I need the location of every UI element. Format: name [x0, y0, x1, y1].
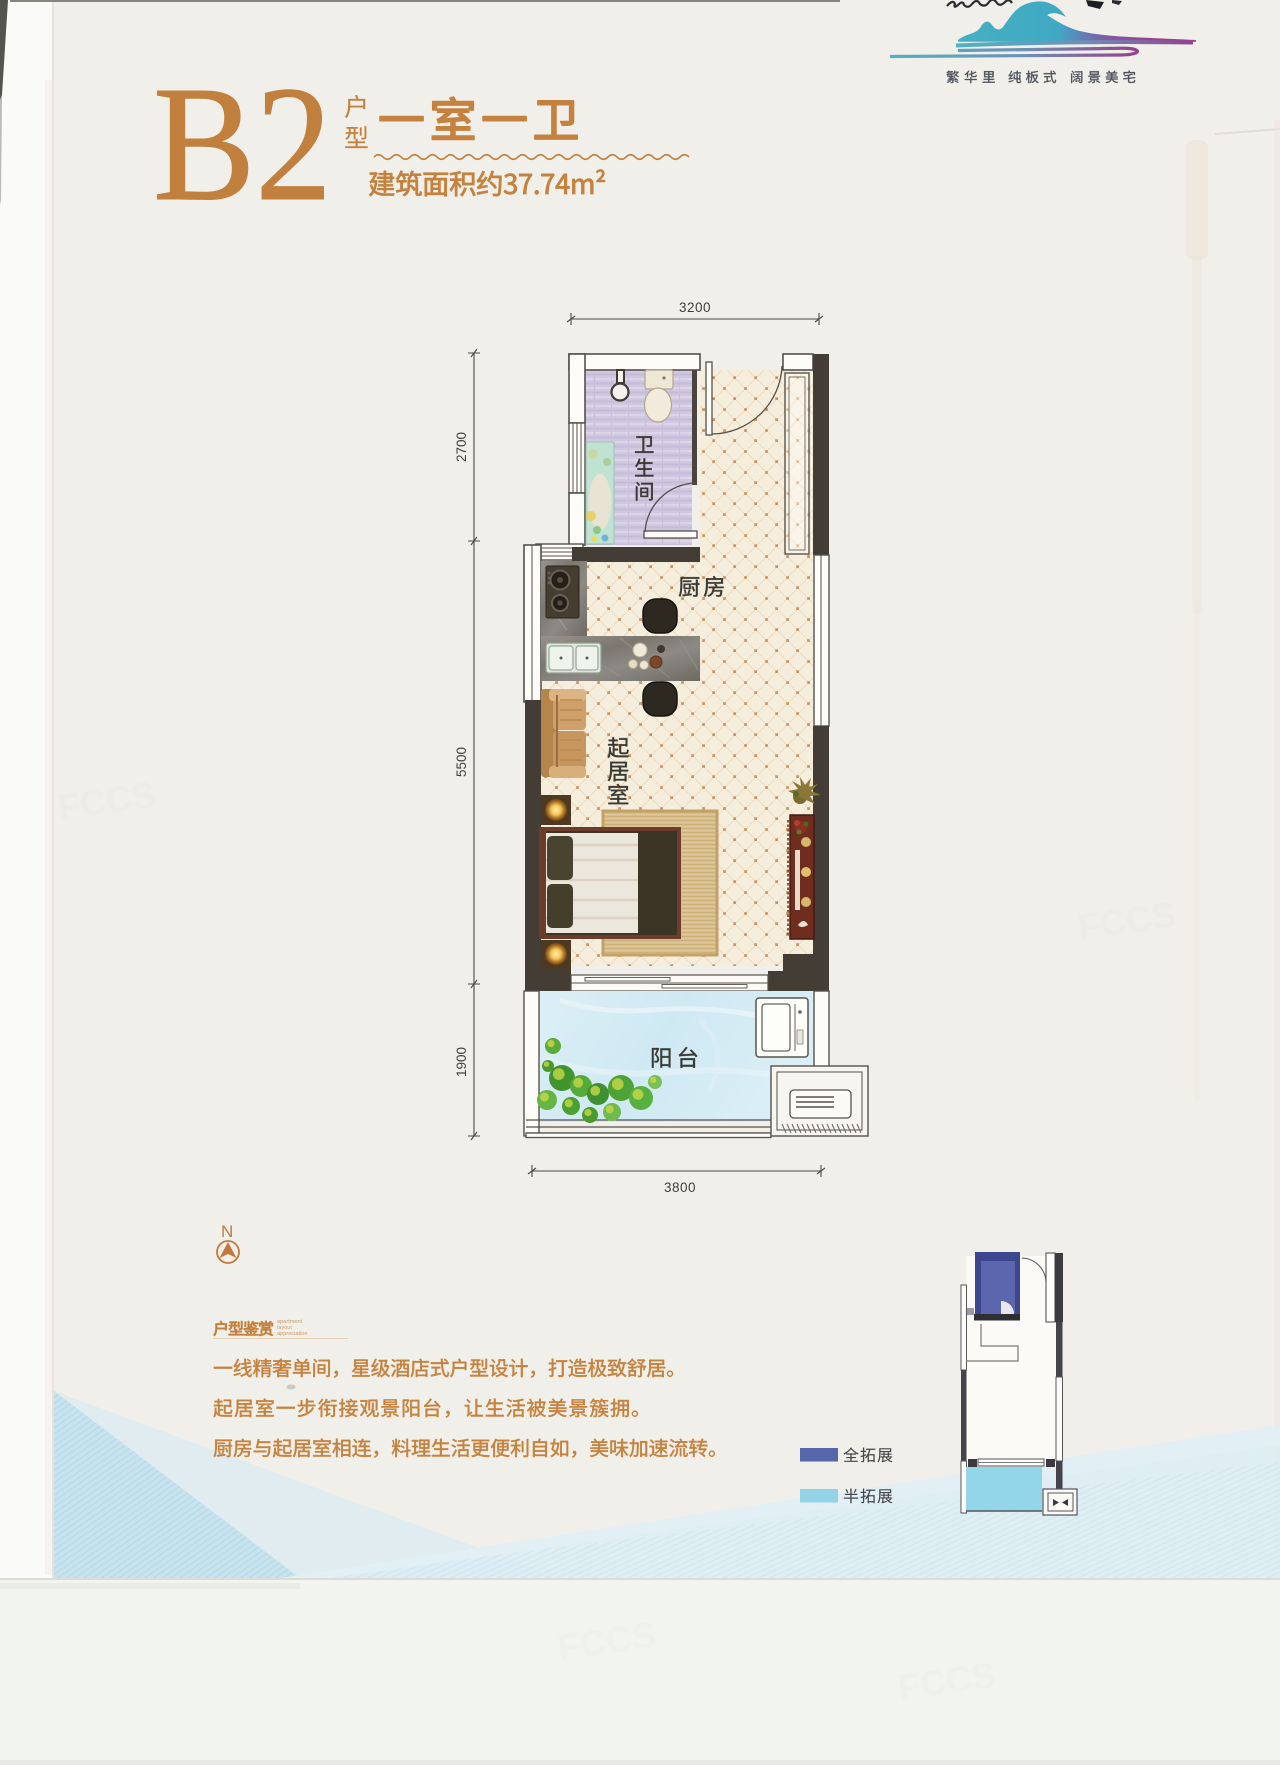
- svg-text:2700: 2700: [454, 432, 469, 462]
- svg-text:3200: 3200: [679, 300, 711, 315]
- svg-text:appreciation: appreciation: [277, 1331, 307, 1337]
- svg-text:B2: B2: [153, 52, 332, 235]
- svg-text:3800: 3800: [664, 1180, 696, 1195]
- svg-text:N: N: [221, 1222, 233, 1241]
- svg-text:5500: 5500: [454, 747, 469, 777]
- svg-text:1900: 1900: [454, 1047, 469, 1077]
